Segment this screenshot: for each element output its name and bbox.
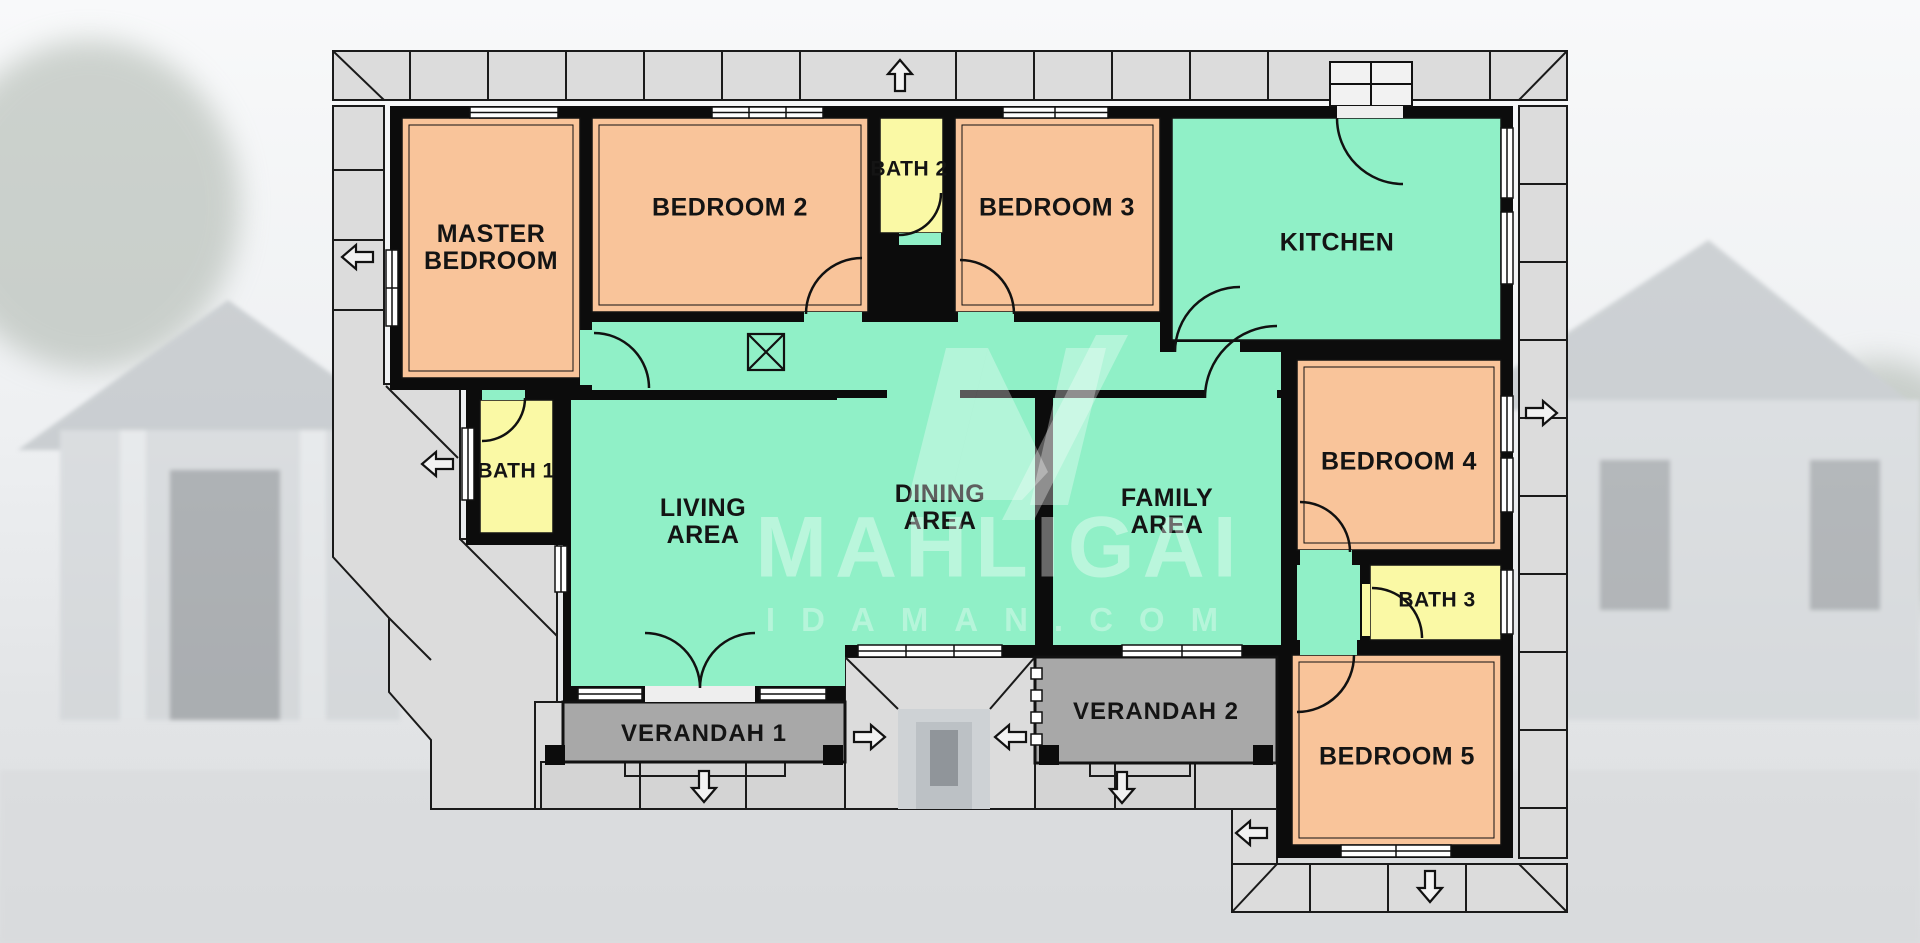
label-bedroom-2: BEDROOM 2 [652, 195, 808, 222]
label-bath-3: BATH 3 [1398, 590, 1475, 613]
label-bedroom-3: BEDROOM 3 [979, 195, 1135, 222]
room-living-dining [571, 398, 1035, 686]
label-family-area: FAMILY AREA [1121, 485, 1213, 539]
floor-plan-svg [0, 0, 1920, 943]
label-dining-area: DINING AREA [895, 481, 986, 535]
label-kitchen: KITCHEN [1280, 230, 1395, 257]
floor-plan-page: MASTER BEDROOM BEDROOM 2 BATH 2 BEDROOM … [0, 0, 1920, 943]
label-verandah-2: VERANDAH 2 [1073, 699, 1239, 725]
room-rear-hall [1297, 565, 1360, 640]
label-living-area: LIVING AREA [660, 495, 746, 549]
kitchen-back-steps [1330, 62, 1412, 106]
label-master-bedroom: MASTER BEDROOM [424, 221, 558, 275]
label-verandah-1: VERANDAH 1 [621, 721, 787, 747]
label-bath-1: BATH 1 [477, 461, 554, 484]
label-bedroom-5: BEDROOM 5 [1319, 744, 1475, 771]
label-bath-2: BATH 2 [870, 159, 947, 182]
entrance-courtyard-opening [898, 709, 990, 809]
label-bedroom-4: BEDROOM 4 [1321, 449, 1477, 476]
